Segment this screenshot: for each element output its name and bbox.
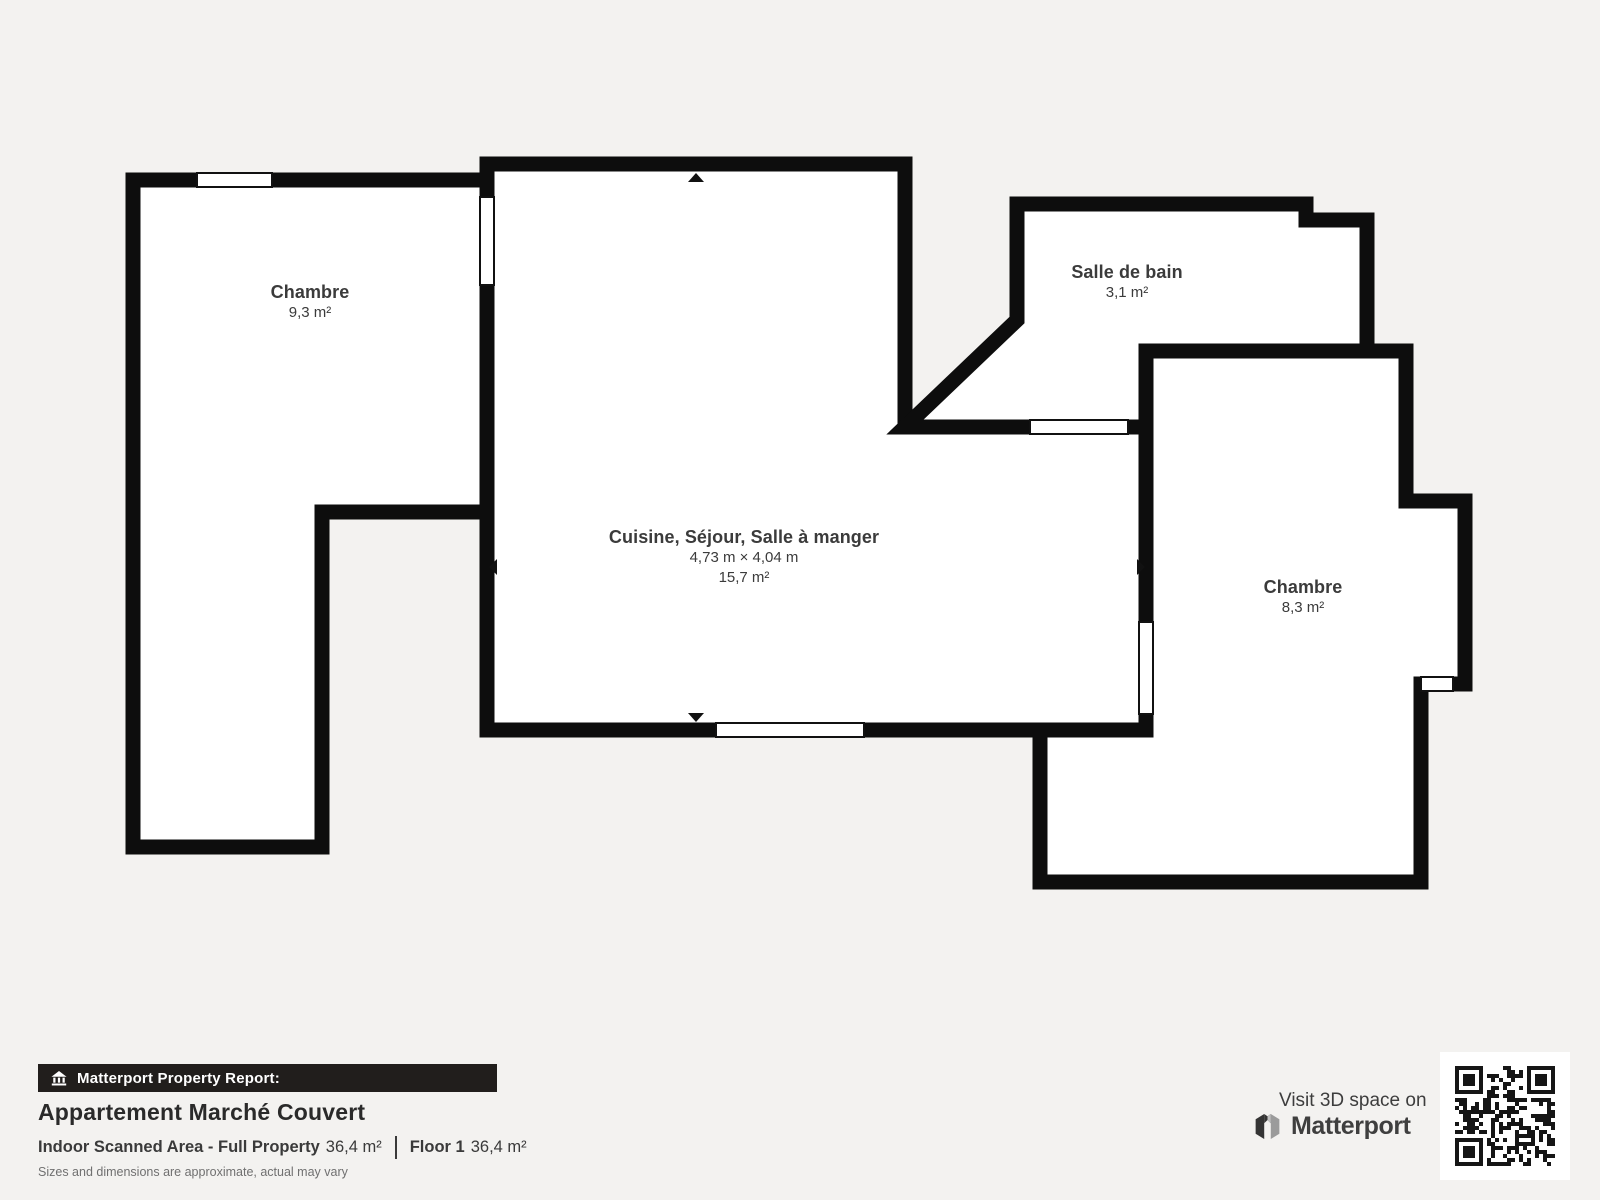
qr-code	[1440, 1052, 1570, 1180]
scanned-area-value: 36,4 m²	[326, 1138, 382, 1157]
disclaimer-text: Sizes and dimensions are approximate, ac…	[38, 1165, 348, 1179]
stats-divider	[395, 1136, 397, 1159]
scanned-area-line: Indoor Scanned Area - Full Property 36,4…	[38, 1136, 527, 1159]
room-label-cuisine-sejour: Cuisine, Séjour, Salle à manger 4,73 m ×…	[609, 526, 879, 588]
matterport-floor-plan-report: Chambre 9,3 m² Cuisine, Séjour, Salle à …	[0, 0, 1600, 1200]
floor-label: Floor 1	[410, 1138, 465, 1157]
room-name: Salle de bain	[1071, 261, 1182, 283]
room-name: Chambre	[271, 281, 350, 303]
window-chambre-left-top	[197, 173, 272, 187]
visit-3d-space-text: Visit 3D space on	[1279, 1090, 1427, 1112]
room-dimensions: 4,73 m × 4,04 m	[609, 548, 879, 568]
room-area: 3,1 m²	[1071, 283, 1182, 303]
matterport-wordmark: Matterport	[1291, 1112, 1411, 1141]
floor-plan-drawing	[0, 0, 1600, 1200]
room-area: 9,3 m²	[271, 303, 350, 323]
house-icon	[50, 1069, 68, 1087]
matterport-logo-icon	[1253, 1112, 1282, 1141]
door-opening-chambre-right	[1139, 622, 1153, 714]
report-badge: Matterport Property Report:	[38, 1064, 497, 1092]
floor-area-value: 36,4 m²	[471, 1138, 527, 1157]
room-label-salle-de-bain: Salle de bain 3,1 m²	[1071, 261, 1182, 303]
window-salle-de-bain-bottom	[1030, 420, 1128, 434]
window-chambre-right-step	[1421, 677, 1453, 691]
room-area: 8,3 m²	[1264, 598, 1343, 618]
scanned-area-label: Indoor Scanned Area - Full Property	[38, 1138, 320, 1157]
room-label-chambre-right: Chambre 8,3 m²	[1264, 576, 1343, 618]
room-area: 15,7 m²	[609, 568, 879, 588]
window-cuisine-bottom	[716, 723, 864, 737]
report-badge-label: Matterport Property Report:	[77, 1070, 280, 1087]
room-label-chambre-left: Chambre 9,3 m²	[271, 281, 350, 323]
window-chambre-left-right-wall	[480, 197, 494, 285]
matterport-brand: Matterport	[1253, 1112, 1411, 1141]
room-name: Chambre	[1264, 576, 1343, 598]
property-name: Appartement Marché Couvert	[38, 1099, 365, 1126]
room-name: Cuisine, Séjour, Salle à manger	[609, 526, 879, 548]
